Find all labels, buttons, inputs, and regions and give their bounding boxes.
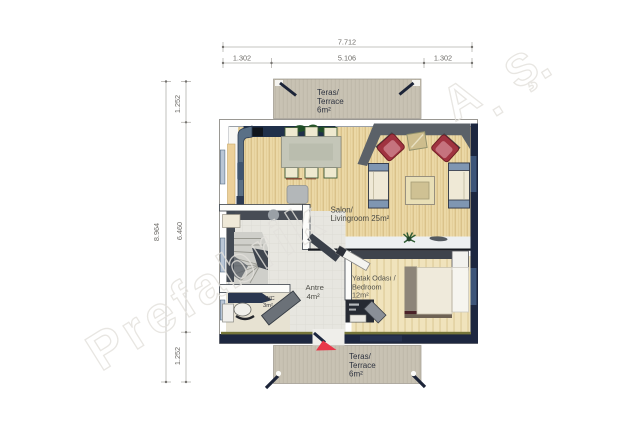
svg-text:3m²: 3m² <box>263 303 273 309</box>
svg-text:8.964: 8.964 <box>152 223 161 241</box>
svg-text:1.252: 1.252 <box>173 95 182 113</box>
svg-text:6.460: 6.460 <box>175 222 184 240</box>
svg-text:5.106: 5.106 <box>338 54 356 63</box>
svg-text:1.302: 1.302 <box>233 54 251 63</box>
svg-text:1.252: 1.252 <box>173 347 182 365</box>
svg-text:4m²: 4m² <box>307 292 321 301</box>
svg-text:6m²: 6m² <box>317 105 331 114</box>
svg-text:6m²: 6m² <box>349 369 363 378</box>
svg-text:Teras/: Teras/ <box>349 352 372 361</box>
svg-text:12m²: 12m² <box>352 291 369 300</box>
svg-text:Yatak Odası /: Yatak Odası / <box>352 274 397 283</box>
svg-text:1.302: 1.302 <box>434 54 452 63</box>
svg-text:Antre: Antre <box>306 283 324 292</box>
svg-text:Teras/: Teras/ <box>317 88 340 97</box>
svg-text:Livingroom 25m²: Livingroom 25m² <box>331 214 390 223</box>
svg-text:7.712: 7.712 <box>338 38 356 47</box>
svg-text:WC: WC <box>265 296 275 302</box>
